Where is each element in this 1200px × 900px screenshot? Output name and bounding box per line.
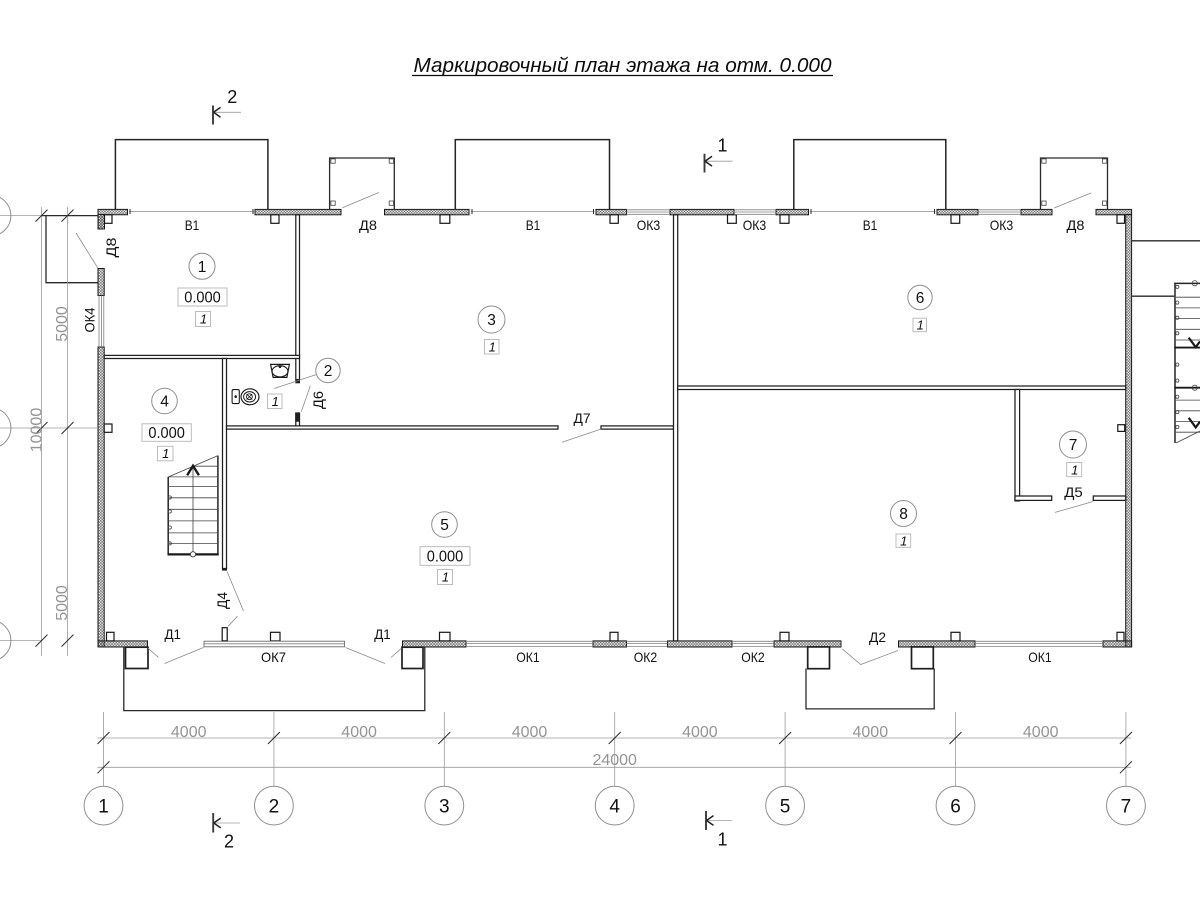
svg-text:Д1: Д1	[164, 626, 181, 642]
svg-text:Маркировочный план этажа на от: Маркировочный план этажа на отм. 0.000	[414, 54, 833, 77]
svg-text:1: 1	[200, 312, 207, 327]
svg-text:4000: 4000	[512, 724, 548, 741]
svg-text:7: 7	[1121, 796, 1132, 817]
svg-text:1: 1	[272, 394, 279, 409]
svg-text:ОК2: ОК2	[634, 649, 658, 665]
svg-text:2: 2	[224, 832, 234, 852]
svg-text:5: 5	[780, 796, 791, 817]
svg-text:1: 1	[98, 796, 109, 817]
svg-text:4000: 4000	[341, 724, 377, 741]
svg-text:4: 4	[160, 394, 169, 411]
svg-text:4000: 4000	[1023, 724, 1059, 741]
svg-text:0.000: 0.000	[184, 289, 221, 306]
svg-text:1: 1	[162, 446, 169, 461]
svg-text:5000: 5000	[54, 306, 71, 342]
svg-text:Д8: Д8	[359, 217, 377, 233]
svg-text:Д1: Д1	[374, 626, 391, 642]
svg-text:1: 1	[1071, 462, 1078, 477]
svg-text:8: 8	[899, 506, 908, 523]
svg-text:4: 4	[609, 796, 620, 817]
svg-text:4000: 4000	[171, 724, 207, 741]
svg-text:0.000: 0.000	[427, 549, 464, 566]
svg-text:ОК7: ОК7	[261, 649, 286, 665]
svg-text:1: 1	[198, 259, 207, 276]
svg-text:5: 5	[440, 517, 449, 534]
svg-text:3: 3	[487, 312, 496, 329]
svg-text:1: 1	[900, 533, 907, 548]
svg-text:1: 1	[917, 318, 924, 333]
svg-text:1: 1	[442, 570, 449, 585]
svg-text:В1: В1	[863, 217, 878, 233]
svg-text:ОК1: ОК1	[1028, 649, 1052, 665]
svg-text:Д6: Д6	[310, 391, 326, 409]
svg-text:0.000: 0.000	[148, 425, 185, 442]
svg-text:6: 6	[916, 290, 925, 307]
svg-text:10000: 10000	[28, 408, 45, 453]
svg-text:6: 6	[950, 796, 961, 817]
svg-text:ОК3: ОК3	[743, 217, 767, 233]
svg-text:3: 3	[439, 796, 450, 817]
svg-text:В1: В1	[185, 217, 200, 233]
svg-text:2: 2	[227, 87, 237, 107]
svg-text:ОК3: ОК3	[637, 217, 661, 233]
svg-text:ОК1: ОК1	[516, 649, 540, 665]
svg-text:ОК3: ОК3	[990, 217, 1014, 233]
svg-text:ОК4: ОК4	[82, 307, 98, 332]
svg-text:2: 2	[324, 363, 333, 380]
svg-text:В1: В1	[526, 217, 541, 233]
svg-text:1: 1	[717, 830, 727, 850]
svg-text:4000: 4000	[853, 724, 889, 741]
svg-text:1: 1	[717, 136, 727, 156]
svg-text:Д5: Д5	[1064, 484, 1083, 500]
svg-text:Д7: Д7	[574, 410, 591, 426]
svg-text:Д4: Д4	[214, 592, 230, 609]
svg-text:4000: 4000	[682, 724, 718, 741]
svg-text:5000: 5000	[54, 585, 71, 621]
svg-text:1: 1	[489, 339, 496, 354]
svg-text:2: 2	[269, 796, 280, 817]
svg-text:Д8: Д8	[1067, 217, 1085, 233]
svg-text:Д2: Д2	[869, 629, 886, 645]
svg-text:7: 7	[1069, 437, 1078, 454]
svg-text:ОК2: ОК2	[741, 649, 765, 665]
svg-text:24000: 24000	[592, 752, 637, 769]
svg-text:Д8: Д8	[103, 237, 119, 257]
